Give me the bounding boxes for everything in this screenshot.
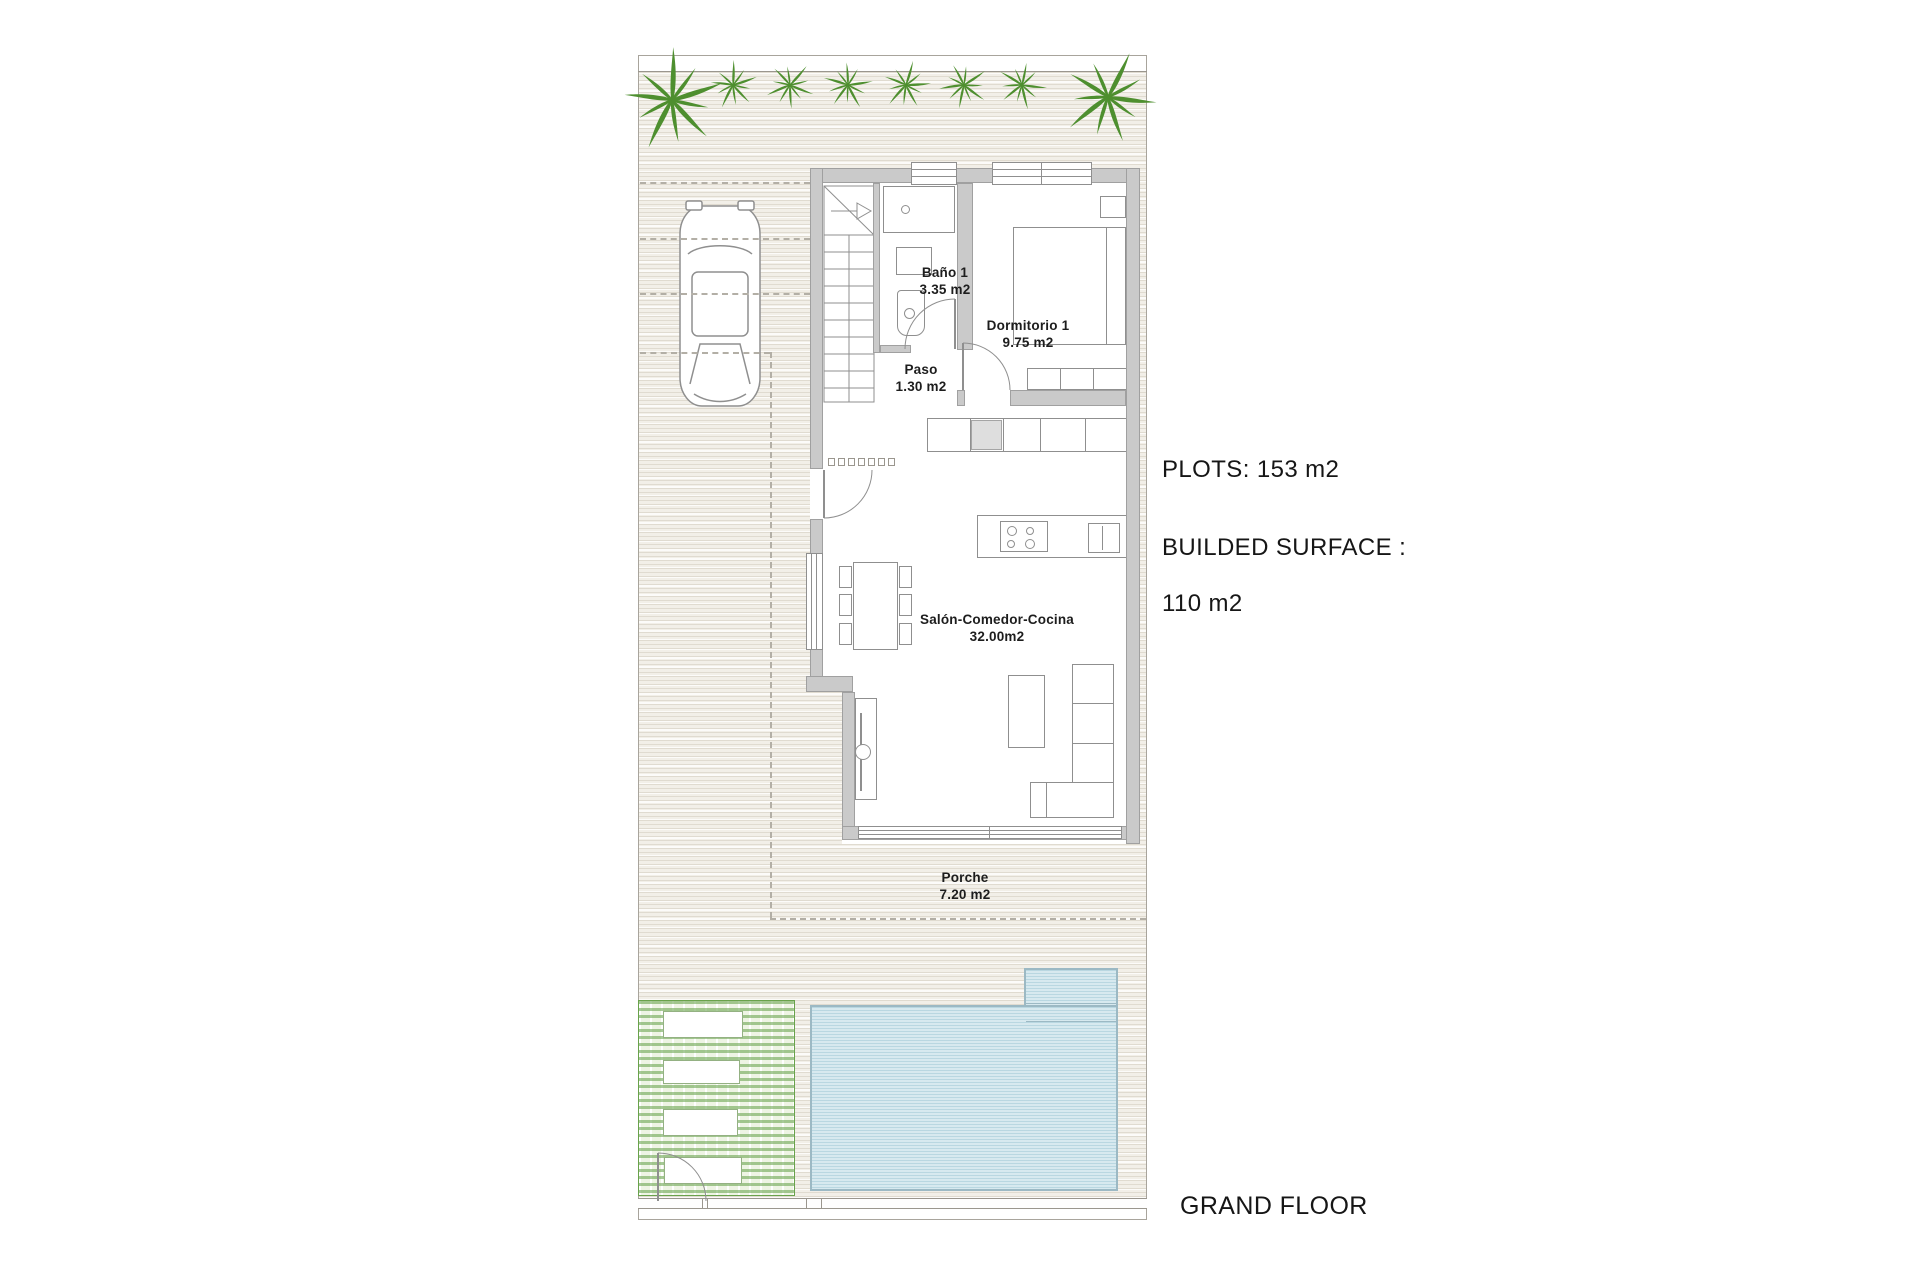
room-label-porch: Porche 7.20 m2 (940, 869, 991, 903)
window-line (859, 834, 1121, 835)
dining-chair (899, 623, 912, 645)
wall (1010, 390, 1126, 406)
burner (1007, 540, 1015, 548)
dining-chair (899, 594, 912, 616)
sofa-chaise (1030, 782, 1114, 818)
nightstand (1100, 196, 1126, 218)
sunbed (663, 1060, 740, 1084)
window-line (816, 554, 817, 649)
palm-tree-icon (992, 55, 1052, 115)
sunbed (663, 1109, 738, 1136)
driveway-dash (640, 238, 810, 240)
porch-boundary-dash (770, 918, 1146, 920)
wall (806, 676, 853, 692)
fence-post (806, 1198, 807, 1209)
floor-title: GRAND FLOOR (1180, 1192, 1368, 1220)
counter-line (1085, 419, 1086, 451)
kitchen-counter (927, 418, 1127, 452)
palm-tree-icon (760, 55, 820, 115)
bathroom-door (905, 299, 957, 351)
window-line (811, 554, 812, 649)
bath-vanity (883, 186, 955, 233)
bed-pillow-line (1106, 228, 1107, 344)
coffee-table (1008, 675, 1045, 748)
window (911, 162, 957, 185)
driveway-dash (640, 182, 810, 184)
sink-line (1102, 526, 1103, 550)
sliding-door (858, 826, 1122, 839)
window-line (989, 827, 990, 838)
pool-step-line (1026, 1021, 1116, 1022)
sunbed (663, 1011, 743, 1038)
window-line (993, 176, 1091, 177)
room-name: Paso (896, 361, 947, 378)
counter-line (1040, 419, 1041, 451)
entry-canopy-dashes (828, 458, 895, 466)
fence-post (821, 1198, 822, 1209)
burner (1025, 539, 1035, 549)
window-line (993, 169, 1091, 170)
room-name: Salón-Comedor-Cocina (920, 611, 1074, 628)
dining-chair (839, 566, 852, 588)
palm-tree-icon (1055, 44, 1161, 150)
tv-mount (855, 744, 871, 760)
room-area: 9.75 m2 (987, 334, 1070, 351)
sofa-seam (1073, 782, 1113, 783)
palm-tree-icon (703, 55, 763, 115)
burner (1026, 527, 1034, 535)
staircase (823, 185, 875, 403)
wardrobe-line (1060, 369, 1061, 389)
window-line (912, 169, 956, 170)
palm-tree-icon (934, 55, 994, 115)
cooktop (1000, 521, 1048, 552)
car-icon (670, 196, 770, 414)
room-name: Porche (940, 869, 991, 886)
counter-line (1003, 419, 1004, 451)
palm-tree-icon (876, 55, 936, 115)
room-area: 3.35 m2 (920, 281, 971, 298)
window-line (859, 830, 1121, 831)
sofa-seam (1073, 703, 1113, 704)
kitchen-appliance (971, 420, 1002, 450)
built-surface-line2: 110 m2 (1162, 590, 1406, 618)
room-label-bedroom: Dormitorio 1 9.75 m2 (987, 317, 1070, 351)
kitchen-sink (1088, 523, 1120, 553)
room-name: Dormitorio 1 (987, 317, 1070, 334)
dining-chair (899, 566, 912, 588)
bath-faucet (901, 205, 910, 214)
room-label-bathroom: Baño 1 3.35 m2 (920, 264, 971, 298)
built-surface-annotation: BUILDED SURFACE : 110 m2 (1162, 506, 1406, 646)
wall (810, 519, 823, 555)
window (992, 162, 1092, 185)
dining-table (853, 562, 898, 650)
room-label-hall: Paso 1.30 m2 (896, 361, 947, 395)
pool-step-line (1026, 1003, 1116, 1004)
garden-gate (656, 1151, 710, 1205)
sofa-seam (1073, 743, 1113, 744)
wall (873, 183, 880, 353)
driveway-dash (640, 293, 810, 295)
swimming-pool (810, 1005, 1118, 1191)
room-area: 1.30 m2 (896, 378, 947, 395)
bottom-fence (638, 1198, 1147, 1209)
built-surface-line1: BUILDED SURFACE : (1162, 534, 1406, 562)
porch-boundary-dash (770, 352, 772, 918)
room-label-living: Salón-Comedor-Cocina 32.00m2 (920, 611, 1074, 645)
plots-annotation: PLOTS: 153 m2 (1162, 456, 1339, 484)
wall (810, 168, 823, 469)
entry-door (824, 470, 874, 520)
wardrobe (1027, 368, 1127, 390)
wall (1126, 168, 1140, 844)
window (806, 553, 823, 650)
wardrobe-line (1093, 369, 1094, 389)
room-area: 7.20 m2 (940, 886, 991, 903)
floor-plan-page: Baño 1 3.35 m2 Dormitorio 1 9.75 m2 Paso… (0, 0, 1920, 1280)
wall (842, 692, 855, 832)
sofa-armrest-line (1046, 783, 1047, 817)
palm-tree-icon (818, 55, 878, 115)
window-line (912, 176, 956, 177)
window-line (1041, 163, 1042, 184)
room-area: 32.00m2 (920, 628, 1074, 645)
room-name: Baño 1 (920, 264, 971, 281)
driveway-dash (640, 352, 770, 354)
burner (1007, 526, 1017, 536)
dining-chair (839, 623, 852, 645)
dining-chair (839, 594, 852, 616)
